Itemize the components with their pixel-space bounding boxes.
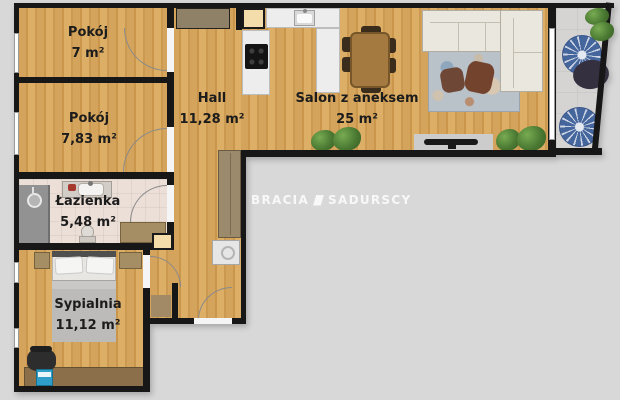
room-name: Salon z aneksem <box>277 88 437 109</box>
room-name: Hall <box>152 88 272 109</box>
bed-pillow <box>86 256 115 274</box>
room-area: 11,28 m² <box>152 109 272 130</box>
plant <box>590 22 614 41</box>
room-name: Łazienka <box>18 191 158 212</box>
room-name: Sypialnia <box>18 294 158 315</box>
wall-bathroom-bedroom <box>14 243 174 250</box>
bed-headboard <box>52 251 116 257</box>
balcony-sliding-door <box>549 28 555 140</box>
wall-living-bottom <box>241 150 556 157</box>
wall-kitchen-stub <box>236 3 242 30</box>
toilet-tank <box>79 236 96 243</box>
washer-door-circle <box>221 246 235 260</box>
room-label-salon: Salon z aneksem 25 m² <box>277 88 437 130</box>
kitchen-counter-right <box>316 28 340 93</box>
dining-table <box>350 32 390 88</box>
room-area: 7 m² <box>18 43 158 64</box>
kitchen-column <box>242 8 265 29</box>
wall-hall-right <box>241 152 246 324</box>
door-gap-room1 <box>167 28 174 72</box>
washing-machine <box>212 240 240 265</box>
hall-wardrobe <box>218 150 241 238</box>
sink-faucet <box>88 181 93 186</box>
watermark-text-right: SADURSCY <box>328 193 411 207</box>
rolling-cart <box>36 369 53 386</box>
door-gap-room2 <box>167 127 174 172</box>
sofa-backrest-line <box>430 22 500 23</box>
sofa-cushion-divider <box>458 22 459 51</box>
watermark-text-left: BRACIA <box>251 193 309 207</box>
tv-stand-foot <box>448 145 456 149</box>
room-area: 11,12 m² <box>18 315 158 336</box>
sink-faucet <box>303 9 307 13</box>
door-gap-bathroom <box>167 185 174 222</box>
floor-pouf <box>439 66 466 94</box>
bed-pillow <box>55 256 84 274</box>
nightstand <box>34 252 50 269</box>
wall-room1-room2 <box>14 77 174 83</box>
wall-room2-bathroom <box>14 172 174 179</box>
cart-top-shelf <box>38 372 51 377</box>
room-area: 25 m² <box>277 109 437 130</box>
floor-plan: Pokój 7 m² Pokój 7,83 m² Hall 11,28 m² S… <box>0 0 620 400</box>
nightstand <box>119 252 142 269</box>
room-label-pokoj-1: Pokój 7 m² <box>18 22 158 64</box>
room-area: 5,48 m² <box>18 212 158 233</box>
door-gap-bedroom <box>143 255 150 288</box>
brand-logo-icon <box>313 195 324 206</box>
wall-top <box>14 3 614 8</box>
kitchen-sink <box>294 10 315 26</box>
room-label-sypialnia: Sypialnia 11,12 m² <box>18 294 158 336</box>
room-name: Pokój <box>19 108 159 129</box>
room-area: 7,83 m² <box>19 129 159 150</box>
sofa-cushion-divider <box>485 22 486 51</box>
wall-bedroom-bottom <box>14 386 150 392</box>
room-label-hall: Hall 11,28 m² <box>152 88 272 130</box>
office-chair-backrest <box>30 346 52 352</box>
hall-storage-niche <box>152 233 173 250</box>
sofa-chaise-section <box>500 10 543 92</box>
sink-basin <box>297 14 312 23</box>
wardrobe-divider-line <box>230 153 231 235</box>
soap-dish <box>68 184 76 191</box>
entrance-door-leaf <box>194 318 232 324</box>
sofa-chaise-divider <box>513 18 514 88</box>
cooktop <box>245 44 268 69</box>
entry-wardrobe <box>176 8 230 29</box>
sofa-chaise-cushion-line <box>514 52 542 53</box>
room-name: Pokój <box>18 22 158 43</box>
window <box>14 262 19 283</box>
room-label-pokoj-2: Pokój 7,83 m² <box>19 108 159 150</box>
watermark: BRACIA SADURSCY <box>251 193 411 207</box>
room-label-lazienka: Łazienka 5,48 m² <box>18 191 158 233</box>
